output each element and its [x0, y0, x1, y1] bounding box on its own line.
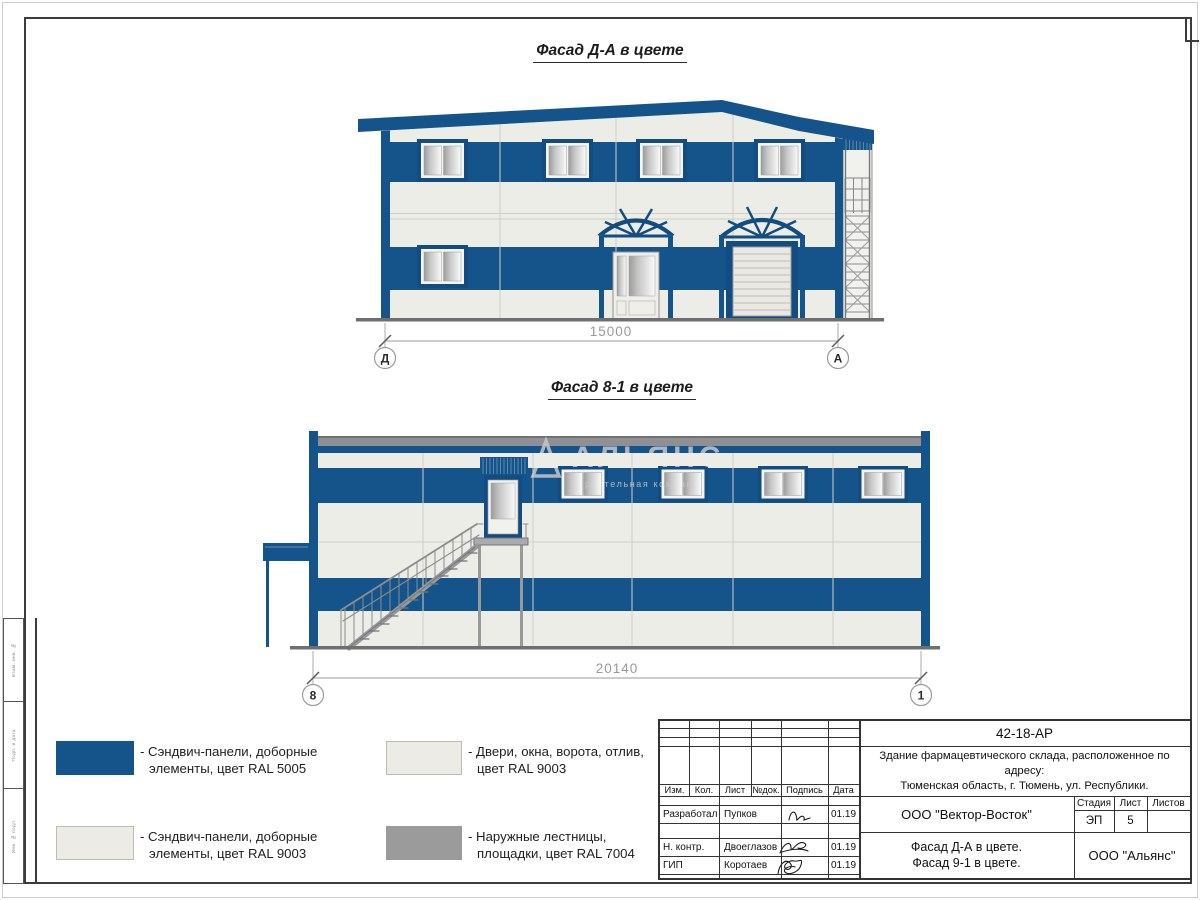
stamp-grid-line [1074, 796, 1075, 878]
person-name: Коротаев [721, 856, 781, 874]
org-name: ООО "Альянс" [1074, 832, 1190, 878]
binding-line [35, 618, 37, 884]
side-cell: Взам. инв. № [4, 619, 23, 701]
legend-label-line: площадки, цвет RAL 7004 [468, 846, 635, 863]
legend-label: - Сэндвич-панели, доборные элементы, цве… [140, 744, 317, 777]
legend-label: - Двери, окна, ворота, отлив, цвет RAL 9… [468, 744, 644, 777]
stamp-grid-line [1074, 810, 1190, 811]
facade-81-title-text: Фасад 8-1 в цвете [548, 379, 696, 400]
date: 01.19 [828, 856, 859, 874]
doc-number: 42-18-АР [859, 721, 1190, 746]
role: Н. контр. [660, 838, 719, 856]
legend-swatch-ral9003-panels [56, 826, 134, 860]
stamp-grid-line [660, 728, 859, 729]
legend-swatch-ral7004 [386, 826, 462, 860]
legend-label-line: элементы, цвет RAL 9003 [140, 846, 317, 863]
stamp-grid-line [660, 746, 859, 747]
legend-label-line: элементы, цвет RAL 5005 [140, 761, 317, 778]
stamp-grid-line [660, 737, 859, 738]
person-name: Двоеглазов [721, 838, 781, 856]
format-box [1185, 19, 1199, 42]
legend-label: - Наружные лестницы, площадки, цвет RAL … [468, 829, 635, 862]
project-description: Здание фармацевтического склада, располо… [859, 746, 1190, 796]
legend-label-line: - Наружные лестницы, [468, 829, 635, 846]
stamp-grid-line [660, 784, 859, 785]
role: ГИП [660, 856, 719, 874]
stamp-grid-line [719, 721, 720, 878]
stamp-grid-line [660, 805, 859, 806]
project-line: Тюменская область, г. Тюмень, ул. Респуб… [900, 779, 1148, 794]
stamp-grid-line [660, 796, 859, 797]
sheet-title-line: Фасад 9-1 в цвете. [912, 855, 1020, 871]
stamp-grid-line [660, 874, 859, 875]
legend-label-line: - Двери, окна, ворота, отлив, [468, 744, 644, 761]
stamp-grid-line [660, 856, 859, 857]
legend-label: - Сэндвич-панели, доборные элементы, цве… [140, 829, 317, 862]
col-kol: Кол. [689, 784, 719, 796]
stamp-grid-line [828, 721, 829, 878]
date: 01.19 [828, 805, 859, 823]
stamp-grid-line [859, 832, 1190, 833]
side-cell-label: Подп. и дата [11, 729, 16, 762]
sheet-title-line: Фасад Д-А в цвете. [911, 839, 1022, 855]
side-cell-label: Инв. № подл. [11, 819, 16, 853]
legend-label-line: цвет RAL 9003 [468, 761, 644, 778]
legend-label-line: - Сэндвич-панели, доборные [140, 829, 317, 846]
side-cell-label: Взам. инв. № [11, 643, 16, 677]
facade-da-title: Фасад Д-А в цвете [460, 42, 760, 63]
stamp-grid-line [859, 721, 861, 878]
col-data: Дата [828, 784, 859, 796]
col-ndok: №док. [751, 784, 781, 796]
col-podpis: Подпись [781, 784, 828, 796]
sheets-label: Листов [1147, 796, 1190, 810]
customer-company: ООО "Вектор-Восток" [859, 796, 1074, 832]
stamp-grid-line [781, 721, 782, 878]
person-name: Пупков [721, 805, 781, 823]
side-column: Взам. инв. № Подп. и дата Инв. № подл. [3, 618, 24, 884]
title-block: 42-18-АР Здание фармацевтического склада… [658, 719, 1192, 880]
stage-value: ЭП [1074, 810, 1114, 832]
sheet-value: 5 [1114, 810, 1147, 832]
legend-swatch-ral5005 [56, 741, 134, 775]
drawing-sheet: 15000 Д А [0, 0, 1200, 900]
stamp-grid-line [859, 796, 1190, 797]
project-line: Здание фармацевтического склада, располо… [859, 749, 1190, 779]
legend-label-line: - Сэндвич-панели, доборные [140, 744, 317, 761]
date: 01.19 [828, 838, 859, 856]
stamp-grid-line [1114, 796, 1115, 832]
side-cell: Подп. и дата [4, 702, 23, 788]
stamp-grid-line [660, 823, 859, 824]
stamp-grid-line [859, 746, 1190, 747]
role: Разработал [660, 805, 719, 823]
sheet-title: Фасад Д-А в цвете. Фасад 9-1 в цвете. [859, 832, 1074, 878]
facade-da-title-text: Фасад Д-А в цвете [533, 42, 686, 63]
facade-81-title: Фасад 8-1 в цвете [472, 379, 772, 400]
stage-label: Стадия [1074, 796, 1114, 810]
stamp-grid-line [660, 838, 859, 839]
side-cell: Инв. № подл. [4, 789, 23, 883]
stamp-grid-line [1147, 796, 1148, 832]
legend-swatch-ral9003-openings [386, 741, 462, 775]
sheets-value [1147, 810, 1190, 832]
col-izm: Изм. [660, 784, 689, 796]
col-list: Лист [719, 784, 751, 796]
sheet-label: Лист [1114, 796, 1147, 810]
